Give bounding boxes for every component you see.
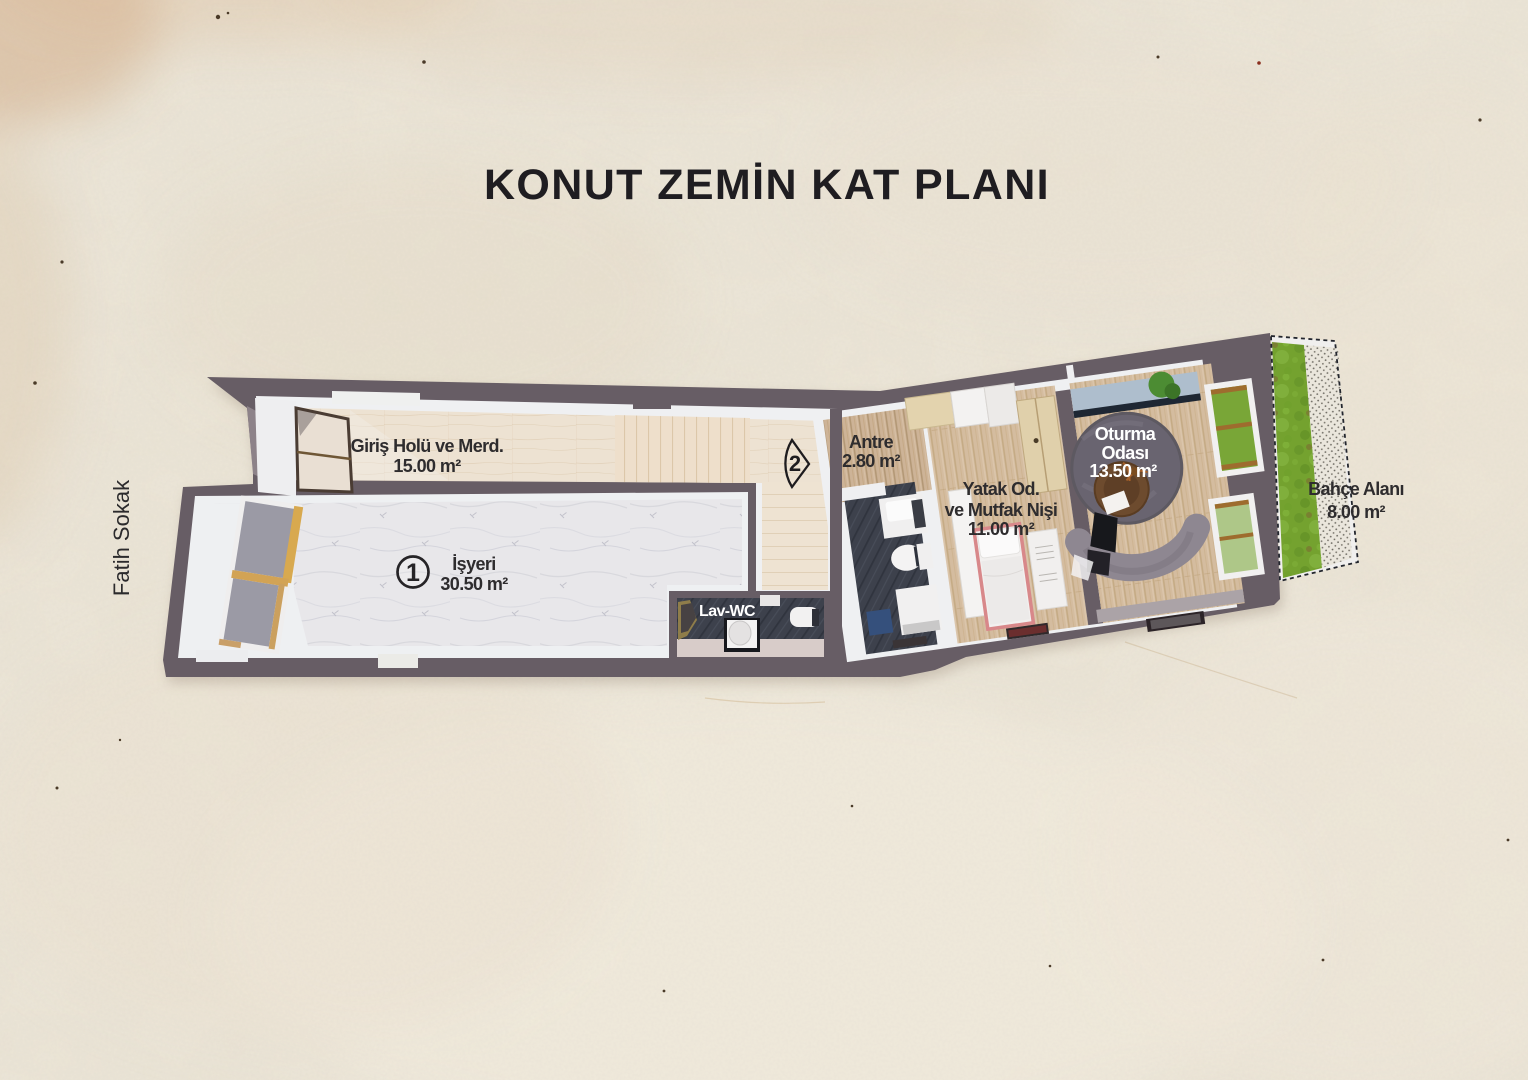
- svg-text:ve Mutfak Nişi: ve Mutfak Nişi: [945, 500, 1058, 520]
- svg-text:13.50 m²: 13.50 m²: [1089, 461, 1157, 481]
- svg-text:Antre: Antre: [849, 432, 894, 452]
- svg-text:Giriş Holü ve Merd.: Giriş Holü ve Merd.: [351, 436, 504, 456]
- svg-text:Fatih Sokak: Fatih Sokak: [109, 479, 134, 596]
- svg-text:Bahçe Alanı: Bahçe Alanı: [1308, 479, 1404, 499]
- svg-text:Odası: Odası: [1101, 443, 1148, 463]
- svg-text:30.50 m²: 30.50 m²: [440, 574, 508, 594]
- svg-text:2.80 m²: 2.80 m²: [842, 451, 900, 471]
- svg-text:Yatak Od.: Yatak Od.: [963, 479, 1040, 499]
- svg-text:Oturma: Oturma: [1095, 424, 1157, 444]
- svg-text:8.00 m²: 8.00 m²: [1327, 502, 1385, 522]
- svg-text:15.00 m²: 15.00 m²: [393, 456, 461, 476]
- svg-text:İşyeri: İşyeri: [452, 554, 495, 574]
- svg-text:KONUT ZEMİN KAT PLANI: KONUT ZEMİN KAT PLANI: [484, 161, 1050, 209]
- svg-text:1: 1: [406, 559, 420, 587]
- svg-text:11.00 m²: 11.00 m²: [968, 519, 1035, 539]
- svg-text:Lav-WC: Lav-WC: [699, 603, 756, 620]
- svg-text:2: 2: [789, 451, 801, 476]
